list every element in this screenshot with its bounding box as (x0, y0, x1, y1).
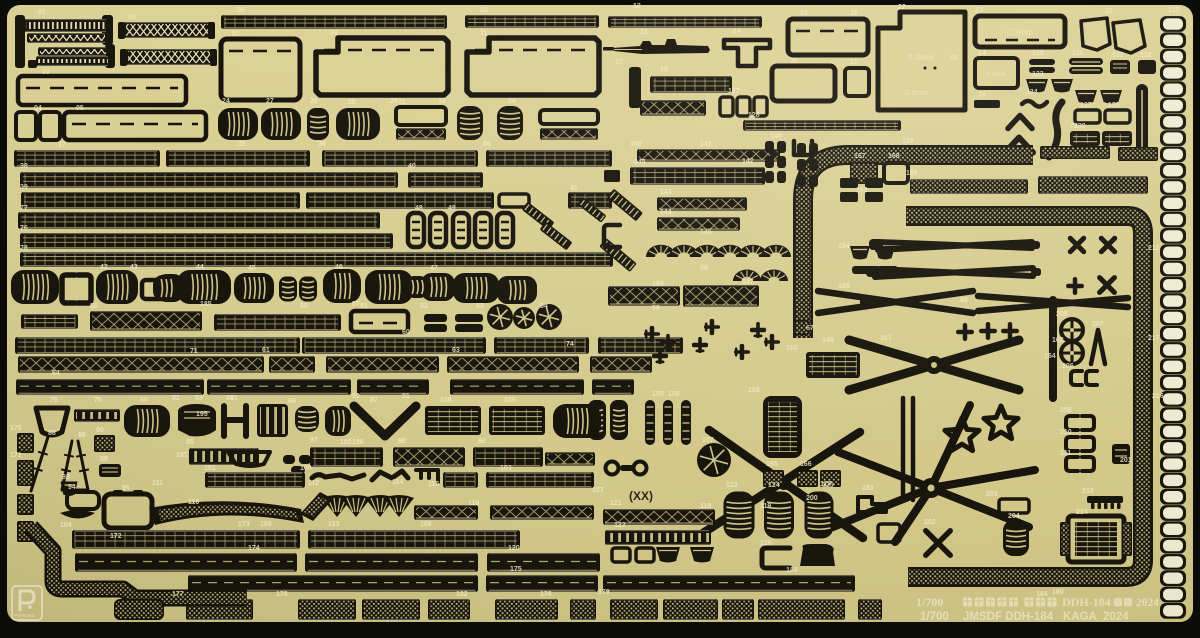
svg-text:149: 149 (822, 337, 834, 344)
svg-text:108: 108 (440, 397, 452, 404)
svg-text:30: 30 (348, 99, 356, 106)
svg-text:16: 16 (850, 10, 858, 17)
svg-text:119: 119 (760, 503, 771, 510)
svg-text:26: 26 (390, 98, 398, 105)
svg-text:113: 113 (328, 521, 339, 528)
svg-text:50: 50 (300, 303, 308, 310)
svg-text:140: 140 (630, 141, 642, 148)
svg-text:143: 143 (660, 189, 672, 196)
svg-text:103: 103 (500, 465, 512, 472)
svg-text:110: 110 (188, 499, 199, 506)
svg-text:129: 129 (1032, 50, 1044, 57)
svg-text:170: 170 (10, 425, 22, 432)
svg-text:115: 115 (428, 481, 439, 488)
svg-text:40: 40 (408, 163, 416, 170)
svg-text:126: 126 (760, 540, 772, 547)
svg-text:37: 37 (58, 142, 66, 149)
svg-text:75: 75 (50, 397, 58, 404)
svg-text:73: 73 (978, 92, 986, 99)
svg-text:36: 36 (318, 141, 326, 148)
svg-text:63: 63 (452, 347, 460, 354)
svg-text:46: 46 (335, 264, 343, 271)
svg-text:168: 168 (888, 153, 900, 160)
svg-text:79: 79 (94, 397, 102, 404)
svg-text:205: 205 (1056, 311, 1068, 318)
svg-text:25: 25 (1105, 8, 1113, 15)
svg-text:131: 131 (1112, 52, 1124, 59)
svg-text:171: 171 (10, 452, 22, 459)
svg-text:138: 138 (1108, 102, 1120, 109)
svg-text:163: 163 (862, 485, 874, 492)
svg-text:91: 91 (402, 393, 410, 400)
svg-text:21: 21 (850, 59, 858, 66)
svg-text:203: 203 (986, 491, 998, 498)
svg-text:33: 33 (438, 98, 446, 105)
svg-text:10: 10 (480, 7, 488, 14)
svg-text:128: 128 (748, 112, 760, 119)
svg-text:83: 83 (195, 395, 203, 402)
svg-text:213: 213 (1082, 488, 1094, 495)
svg-text:123: 123 (726, 482, 738, 489)
svg-text:82: 82 (172, 395, 180, 402)
svg-text:181: 181 (176, 452, 188, 459)
svg-text:174: 174 (248, 545, 260, 552)
svg-text:84: 84 (226, 395, 234, 402)
svg-text:132: 132 (1140, 52, 1152, 59)
svg-text:15: 15 (800, 10, 808, 17)
svg-text:139: 139 (1074, 123, 1086, 130)
svg-text:156: 156 (668, 391, 680, 398)
svg-text:53: 53 (476, 303, 484, 310)
svg-text:125: 125 (822, 482, 834, 489)
svg-text:135: 135 (902, 138, 914, 145)
svg-text:04: 04 (34, 105, 42, 112)
svg-text:22: 22 (898, 4, 906, 11)
svg-text:98: 98 (398, 438, 406, 445)
svg-text:41: 41 (570, 185, 578, 192)
svg-text:67: 67 (806, 325, 814, 332)
svg-text:215: 215 (1168, 7, 1180, 14)
svg-text:195: 195 (196, 411, 208, 418)
svg-text:86: 86 (78, 432, 86, 439)
svg-text:24: 24 (978, 50, 986, 57)
svg-text:107: 107 (592, 487, 604, 494)
svg-text:02: 02 (128, 14, 136, 21)
svg-text:14: 14 (733, 28, 741, 35)
svg-text:214: 214 (1076, 509, 1088, 516)
svg-text:154: 154 (838, 243, 850, 250)
svg-text:133: 133 (1032, 71, 1044, 78)
svg-text:111: 111 (152, 480, 163, 487)
svg-text:180: 180 (1052, 589, 1064, 596)
svg-text:106: 106 (420, 521, 432, 528)
svg-text:77: 77 (20, 205, 28, 212)
svg-text:49: 49 (448, 205, 456, 212)
svg-text:147: 147 (742, 279, 754, 286)
svg-text:185: 185 (200, 301, 212, 308)
svg-text:07: 07 (232, 31, 240, 38)
svg-text:35: 35 (238, 141, 246, 148)
svg-text:148: 148 (770, 133, 782, 140)
svg-text:48: 48 (415, 205, 423, 212)
svg-text:42: 42 (100, 264, 108, 271)
svg-text:03: 03 (42, 69, 50, 76)
svg-text:153: 153 (856, 187, 868, 194)
svg-text:105: 105 (260, 521, 272, 528)
svg-text:92: 92 (352, 393, 360, 400)
svg-text:130: 130 (1072, 50, 1084, 57)
svg-text:65: 65 (950, 55, 958, 62)
svg-text:160: 160 (786, 345, 798, 352)
svg-text:196: 196 (352, 439, 364, 446)
svg-text:202: 202 (924, 519, 936, 526)
svg-text:161: 161 (880, 335, 892, 342)
svg-text:93: 93 (62, 474, 70, 481)
svg-text:183: 183 (786, 567, 798, 574)
svg-text:47: 47 (430, 265, 438, 272)
svg-text:178: 178 (276, 591, 288, 598)
svg-text:204: 204 (1008, 513, 1020, 520)
svg-text:54: 54 (540, 303, 548, 310)
svg-text:56: 56 (652, 305, 660, 312)
svg-text:173: 173 (238, 521, 250, 528)
svg-text:145: 145 (634, 159, 646, 166)
svg-text:207: 207 (1092, 321, 1104, 328)
svg-text:44: 44 (196, 264, 204, 271)
svg-text:13: 13 (640, 29, 648, 36)
svg-text:124: 124 (768, 482, 780, 489)
svg-text:17: 17 (615, 59, 623, 66)
svg-text:57: 57 (352, 301, 360, 308)
svg-text:182: 182 (456, 591, 468, 598)
svg-text:28: 28 (310, 98, 318, 105)
svg-text:208: 208 (1060, 407, 1072, 414)
svg-text:216: 216 (1152, 393, 1164, 400)
svg-text:114: 114 (392, 479, 403, 486)
svg-text:122: 122 (614, 522, 626, 529)
svg-text:162: 162 (1052, 337, 1064, 344)
svg-text:45: 45 (248, 265, 256, 272)
svg-text:134: 134 (1026, 89, 1038, 96)
svg-text:104: 104 (60, 522, 72, 529)
svg-text:55: 55 (90, 303, 98, 310)
svg-text:127: 127 (728, 88, 740, 95)
svg-text:61: 61 (262, 347, 270, 354)
svg-text:120: 120 (508, 545, 520, 552)
svg-text:164: 164 (1044, 353, 1056, 360)
svg-text:167: 167 (854, 153, 866, 160)
svg-text:24: 24 (222, 98, 230, 105)
svg-text:01: 01 (38, 9, 46, 16)
svg-text:05: 05 (76, 105, 84, 112)
svg-text:78: 78 (20, 245, 28, 252)
svg-text:172: 172 (110, 533, 122, 540)
svg-text:101: 101 (204, 465, 216, 472)
svg-text:27: 27 (266, 98, 274, 105)
svg-text:102: 102 (340, 439, 352, 446)
svg-text:09: 09 (330, 30, 338, 37)
svg-text:137: 137 (1080, 102, 1092, 109)
svg-text:12: 12 (633, 3, 641, 10)
svg-text:36: 36 (483, 141, 491, 148)
svg-text:11: 11 (480, 30, 488, 37)
svg-text:155: 155 (652, 391, 664, 398)
svg-text:118: 118 (700, 503, 711, 510)
svg-text:51: 51 (360, 303, 368, 310)
svg-text:31: 31 (398, 99, 406, 106)
svg-text:88: 88 (48, 430, 56, 437)
svg-text:217: 217 (1148, 335, 1160, 342)
svg-text:179: 179 (598, 589, 610, 596)
svg-text:158: 158 (748, 387, 760, 394)
svg-text:177: 177 (172, 591, 184, 598)
svg-text:109: 109 (504, 397, 516, 404)
svg-text:121: 121 (610, 500, 622, 507)
svg-text:85: 85 (186, 439, 194, 446)
svg-text:87: 87 (370, 397, 378, 404)
svg-text:23: 23 (975, 7, 983, 14)
svg-text:212: 212 (1148, 245, 1160, 252)
svg-text:38: 38 (20, 163, 28, 170)
svg-text:96: 96 (288, 398, 296, 405)
svg-text:176: 176 (540, 591, 552, 598)
svg-text:199: 199 (652, 281, 664, 288)
svg-text:74: 74 (566, 341, 574, 348)
svg-text:71: 71 (190, 348, 198, 355)
svg-text:211: 211 (1060, 450, 1071, 457)
svg-text:76: 76 (20, 225, 28, 232)
svg-text:157: 157 (702, 437, 714, 444)
svg-text:184: 184 (1036, 591, 1048, 598)
svg-text:112: 112 (308, 480, 319, 487)
svg-text:06: 06 (237, 7, 245, 14)
svg-text:95: 95 (122, 485, 130, 492)
svg-text:97: 97 (310, 437, 318, 444)
svg-text:60: 60 (402, 329, 410, 336)
svg-text:142: 142 (742, 158, 754, 165)
svg-text:90: 90 (96, 427, 104, 434)
svg-text:166: 166 (800, 461, 812, 468)
svg-text:43: 43 (130, 264, 138, 271)
svg-text:165: 165 (766, 461, 778, 468)
svg-text:169: 169 (906, 170, 918, 177)
svg-text:52: 52 (420, 303, 428, 310)
svg-text:175: 175 (510, 566, 522, 573)
svg-text:59: 59 (700, 265, 708, 272)
svg-text:64: 64 (52, 370, 60, 377)
svg-text:66: 66 (960, 297, 968, 304)
svg-text:89: 89 (100, 456, 108, 463)
svg-text:94: 94 (68, 484, 76, 491)
svg-text:146: 146 (700, 229, 712, 236)
svg-text:210: 210 (1060, 429, 1072, 436)
svg-text:141: 141 (700, 141, 712, 148)
svg-text:18: 18 (660, 66, 668, 73)
svg-text:80: 80 (140, 397, 148, 404)
svg-text:198: 198 (838, 283, 850, 290)
svg-text:34: 34 (508, 98, 516, 105)
svg-text:39: 39 (20, 184, 28, 191)
svg-text:200: 200 (806, 495, 818, 502)
svg-text:116: 116 (468, 500, 479, 507)
svg-text:99: 99 (478, 438, 486, 445)
svg-text:100: 100 (300, 465, 312, 472)
svg-text:201: 201 (1120, 457, 1132, 464)
svg-text:206: 206 (1062, 363, 1074, 370)
svg-text:20: 20 (790, 58, 798, 65)
svg-text:144: 144 (660, 209, 672, 216)
